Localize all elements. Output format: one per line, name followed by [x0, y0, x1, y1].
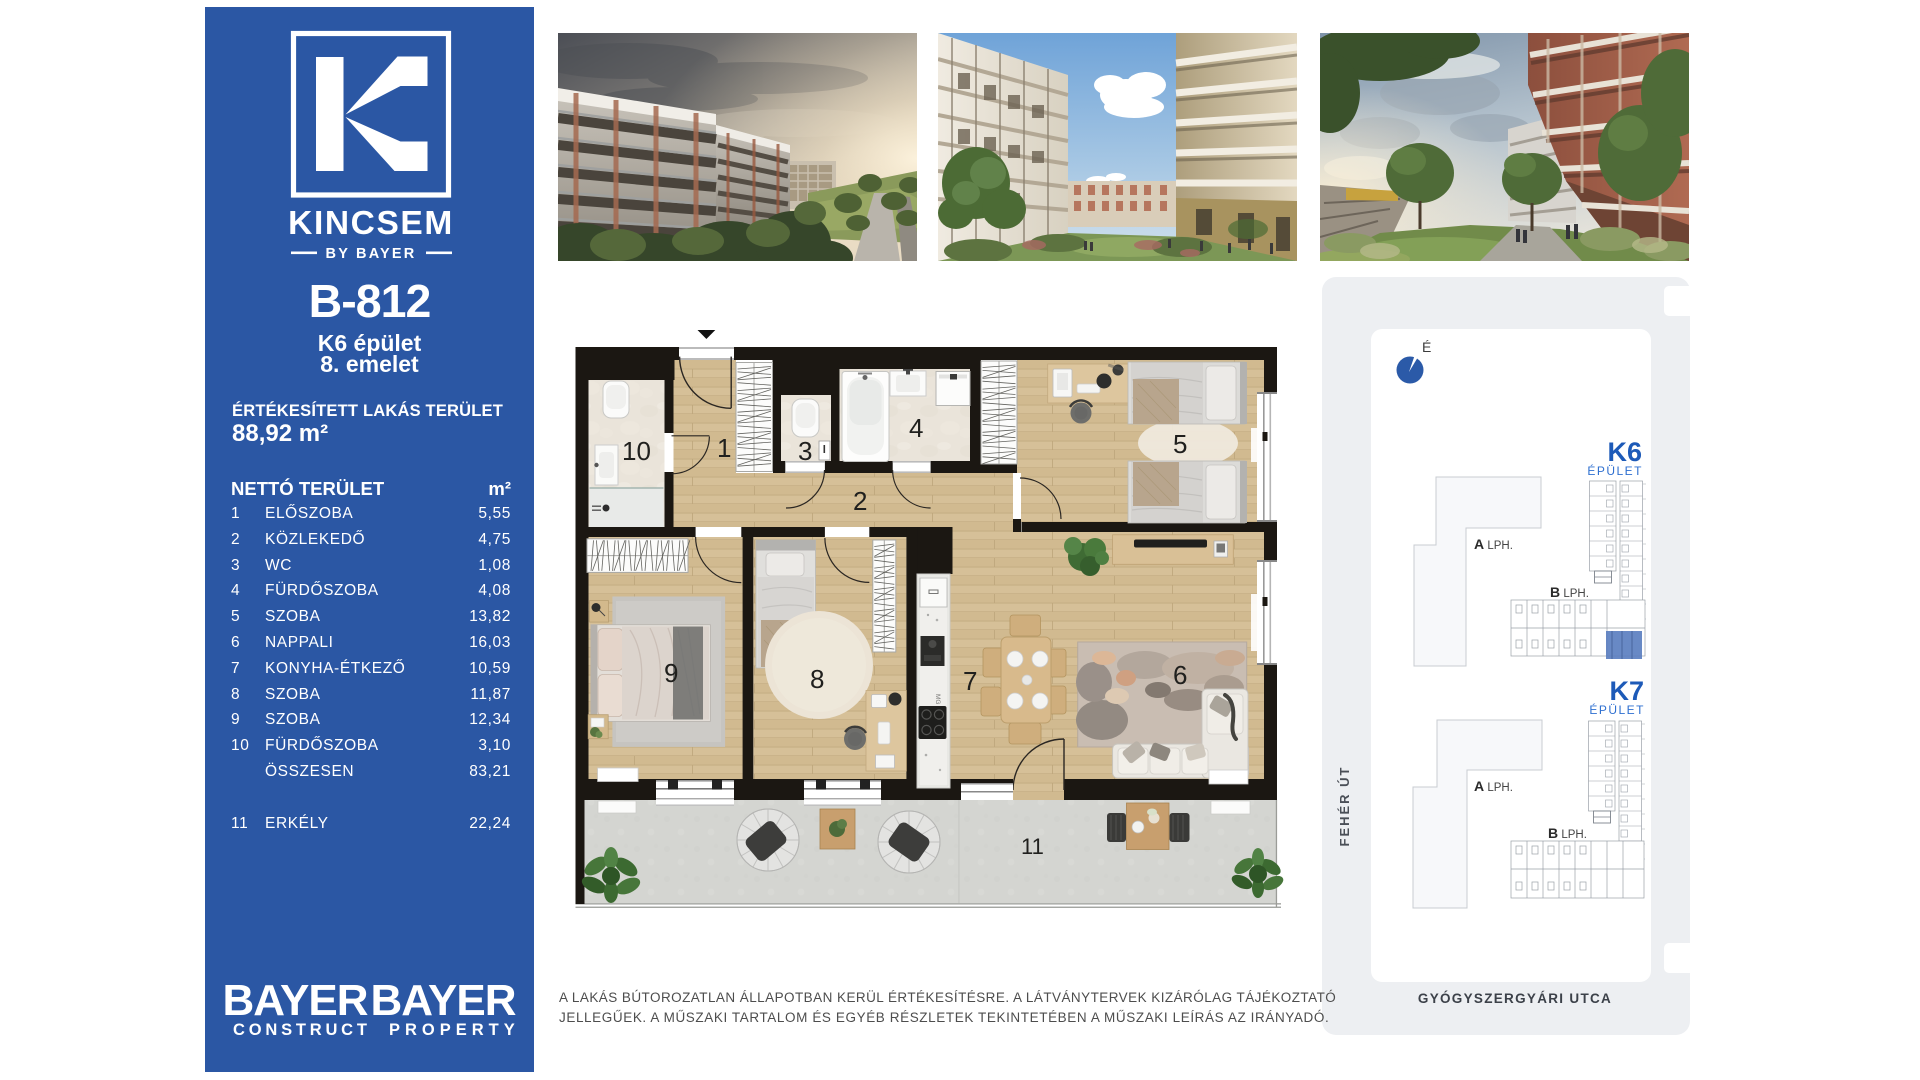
- svg-text:K6: K6: [1607, 437, 1642, 467]
- svg-text:MG: MG: [934, 694, 941, 704]
- svg-text:1: 1: [717, 433, 731, 463]
- svg-text:3: 3: [798, 436, 812, 466]
- svg-text:É: É: [1422, 339, 1431, 355]
- svg-text:10: 10: [622, 436, 651, 466]
- svg-text:BY BAYER: BY BAYER: [326, 246, 417, 262]
- svg-text:KINCSEM: KINCSEM: [288, 205, 454, 242]
- svg-text:5: 5: [1173, 429, 1187, 459]
- svg-text:K7: K7: [1609, 676, 1644, 706]
- svg-text:6: 6: [1173, 660, 1187, 690]
- svg-text:GYÓGYSZERGYÁRI UTCA: GYÓGYSZERGYÁRI UTCA: [1418, 991, 1612, 1006]
- svg-text:FEHÉR ÚT: FEHÉR ÚT: [1337, 766, 1352, 847]
- svg-text:9: 9: [664, 658, 678, 688]
- svg-text:4: 4: [909, 413, 923, 443]
- svg-text:7: 7: [963, 666, 977, 696]
- svg-text:ÉPÜLET: ÉPÜLET: [1589, 702, 1645, 717]
- svg-text:8: 8: [810, 664, 824, 694]
- svg-text:11: 11: [1021, 834, 1044, 859]
- svg-text:ÉPÜLET: ÉPÜLET: [1587, 463, 1643, 478]
- svg-text:2: 2: [853, 486, 867, 516]
